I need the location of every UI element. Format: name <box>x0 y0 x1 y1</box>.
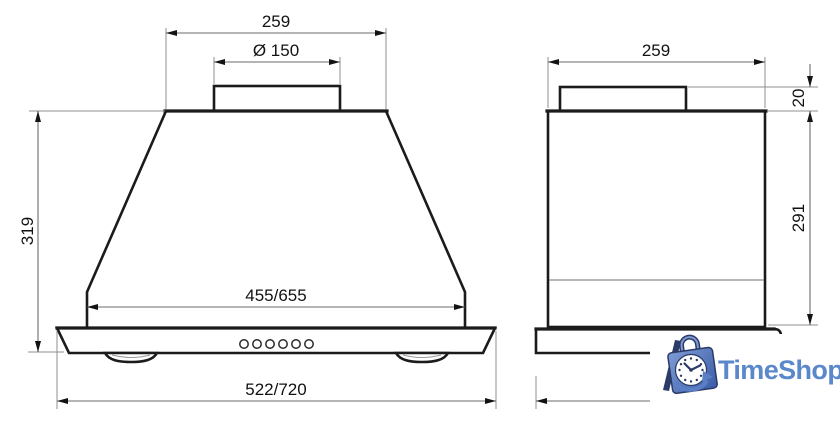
dim-label-body-height: 291 <box>789 204 808 232</box>
front-bottom-panel <box>57 328 495 353</box>
arrow-right <box>754 59 765 65</box>
arrow-bottom <box>807 314 813 325</box>
dim-label-top-width: 259 <box>262 12 290 31</box>
clock-icon <box>676 355 707 386</box>
dim-label-collar-height: 20 <box>789 89 808 108</box>
control-button <box>253 340 261 348</box>
front-duct-collar <box>214 86 340 111</box>
front-dim-duct-diameter: Ø 150 <box>214 41 340 84</box>
arrow-left <box>87 304 98 310</box>
extension-lines <box>28 111 165 352</box>
control-button <box>292 340 300 348</box>
arrow-down <box>807 76 813 87</box>
side-dim-bottom-partial <box>536 376 656 409</box>
side-body <box>548 111 765 327</box>
front-dim-body-width: 455/655 <box>87 286 465 310</box>
control-button <box>305 340 313 348</box>
arrow-left <box>166 30 177 36</box>
dim-label-body-width: 455/655 <box>245 286 306 305</box>
front-right-slant <box>386 111 465 328</box>
side-duct-collar <box>560 87 686 111</box>
clock-center <box>689 368 693 372</box>
arrow-top <box>35 111 41 122</box>
side-dim-collar-height: 20 <box>688 64 818 111</box>
extension-lines <box>214 57 340 84</box>
arrow-right <box>375 30 386 36</box>
arrow-top <box>807 111 813 122</box>
timeshop-watermark: TimeShop <box>650 334 840 405</box>
arrow-left <box>536 398 547 404</box>
arrow-bottom <box>35 341 41 352</box>
front-hood-outline <box>57 86 495 362</box>
arrow-right <box>485 398 496 404</box>
front-dim-height: 319 <box>18 111 165 352</box>
control-button <box>240 340 248 348</box>
control-button <box>266 340 274 348</box>
side-hood-outline <box>536 87 781 353</box>
front-left-slant <box>87 111 166 328</box>
arrow-right <box>329 59 340 65</box>
arrow-right <box>454 304 465 310</box>
dim-label-height: 319 <box>18 217 37 245</box>
dim-label-duct-diameter: Ø 150 <box>253 41 299 60</box>
arrow-left <box>57 398 68 404</box>
cooker-hood-dimension-drawing: 259 Ø 150 319 455/655 <box>0 0 840 433</box>
control-button <box>279 340 287 348</box>
side-dim-body-height: 291 <box>768 111 818 325</box>
dim-label-overall-width: 522/720 <box>245 380 306 399</box>
front-view: 259 Ø 150 319 455/655 <box>18 12 496 409</box>
dim-label-depth: 259 <box>642 41 670 60</box>
arrow-left <box>214 59 225 65</box>
arrow-left <box>548 59 559 65</box>
drawing-canvas: 259 Ø 150 319 455/655 <box>0 0 840 433</box>
brand-name: TimeShop <box>718 355 840 385</box>
